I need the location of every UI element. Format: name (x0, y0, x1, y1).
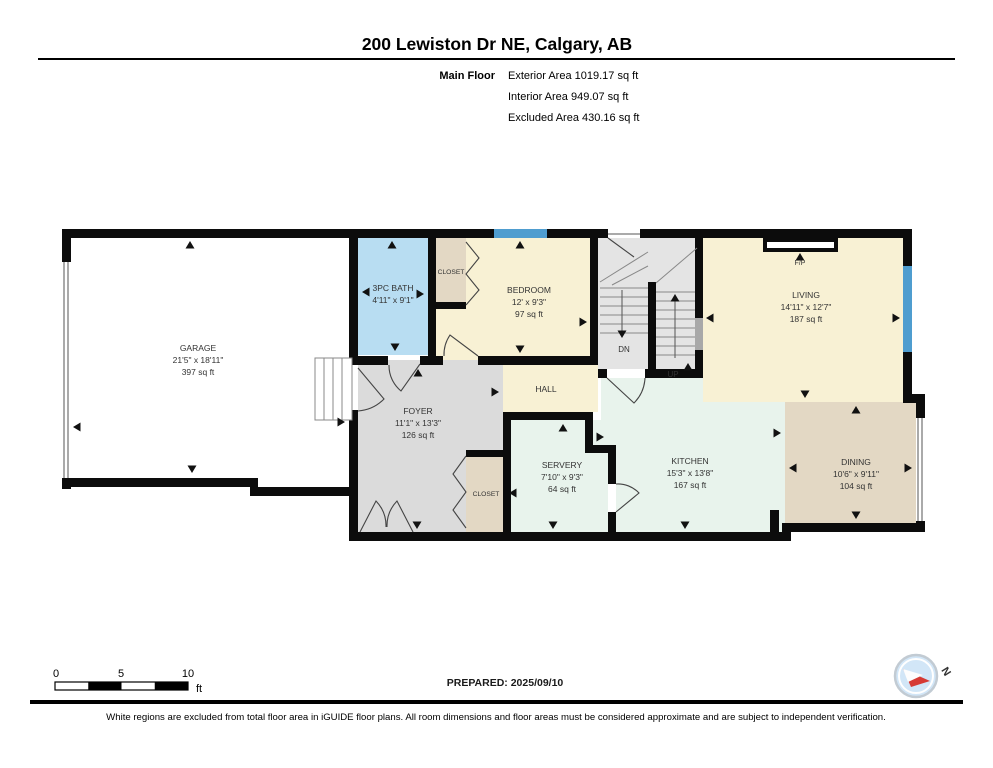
hall-label: HALL (535, 384, 557, 394)
scale-bar: 0 5 10 ft (53, 668, 202, 695)
kitchen-dims: 15'3" x 13'8" (667, 468, 714, 478)
bedroom-name: BEDROOM (507, 285, 551, 295)
garage-area: 397 sq ft (182, 367, 215, 377)
garage-door (62, 262, 71, 478)
compass-north-label: N (938, 665, 952, 678)
servery-dims: 7'10" x 9'3" (541, 472, 583, 482)
kitchen-area: 167 sq ft (674, 480, 707, 490)
scale-tick-10: 10 (182, 668, 194, 680)
stairs-up-label: UP (667, 370, 678, 379)
kitchen-name: KITCHEN (671, 456, 708, 466)
excluded-area: Excluded Area 430.16 sq ft (508, 112, 639, 124)
dining-dims: 10'6" x 9'11" (833, 469, 879, 479)
foyer-name: FOYER (403, 406, 432, 416)
dining-name: DINING (841, 457, 871, 467)
bath-dims: 4'11" x 9'1" (372, 295, 413, 305)
interior-area: Interior Area 949.07 sq ft (508, 91, 628, 103)
dining-area: 104 sq ft (840, 481, 873, 491)
header-rule (38, 58, 955, 60)
foyer-closet-label: CLOSET (473, 491, 500, 498)
foyer-area: 126 sq ft (402, 430, 435, 440)
bedroom-closet-label: CLOSET (438, 269, 465, 276)
scale-tick-5: 5 (118, 668, 124, 680)
prepared-date: PREPARED: 2025/09/10 (447, 677, 564, 689)
floor-plan-page: 200 Lewiston Dr NE, Calgary, AB Main Flo… (0, 0, 993, 768)
floor-plan: 200 Lewiston Dr NE, Calgary, AB Main Flo… (0, 0, 993, 768)
footer: 0 5 10 ft PREPARED: 2025/09/10 N White r… (30, 655, 963, 723)
disclaimer-text: White regions are excluded from total fl… (106, 712, 886, 723)
page-title: 200 Lewiston Dr NE, Calgary, AB (362, 34, 632, 54)
bedroom-area: 97 sq ft (515, 309, 544, 319)
compass-icon: N (895, 655, 953, 697)
bath-name: 3PC BATH (373, 283, 414, 293)
garage-dims: 21'5" x 18'11" (173, 355, 224, 365)
living-name: LIVING (792, 290, 820, 300)
exterior-area: Exterior Area 1019.17 sq ft (508, 70, 638, 82)
servery-area: 64 sq ft (548, 484, 577, 494)
bedroom-window (494, 229, 547, 238)
bedroom-dims: 12' x 9'3" (512, 297, 546, 307)
scale-tick-0: 0 (53, 668, 59, 680)
scale-unit: ft (196, 683, 202, 695)
room-stairwell (598, 238, 695, 369)
fireplace-niche (765, 240, 836, 250)
garage-name: GARAGE (180, 343, 217, 353)
fireplace-label: F/P (795, 260, 806, 267)
room-fills (71, 238, 916, 533)
stair-top-opening (608, 229, 640, 238)
footer-rule (30, 700, 963, 704)
servery-name: SERVERY (542, 460, 583, 470)
living-dims: 14'11" x 12'7" (781, 302, 832, 312)
stairs-down-label: DN (618, 345, 630, 354)
floor-label: Main Floor (439, 70, 495, 82)
header: 200 Lewiston Dr NE, Calgary, AB Main Flo… (38, 34, 955, 124)
dining-window (916, 418, 925, 521)
living-window (903, 266, 912, 352)
garage-steps (315, 358, 352, 420)
foyer-dims: 11'1" x 13'3" (395, 418, 441, 428)
living-area: 187 sq ft (790, 314, 823, 324)
